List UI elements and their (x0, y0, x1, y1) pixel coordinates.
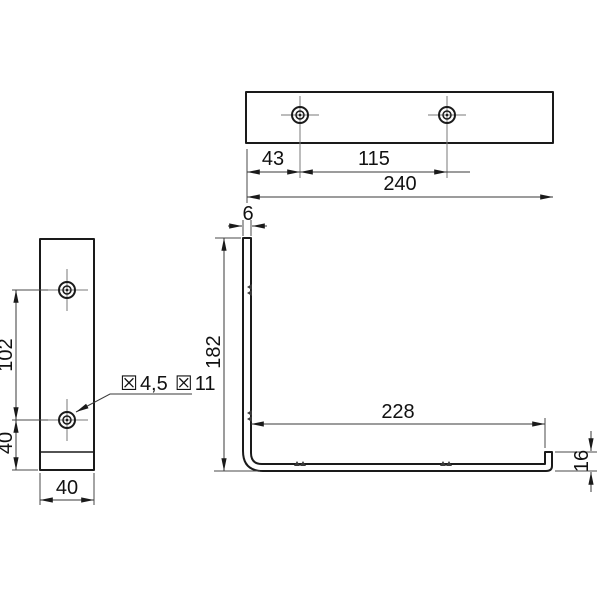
hole-center-dot (66, 289, 69, 292)
dim-label-6: 6 (242, 203, 253, 225)
hole-center-dot (66, 419, 69, 422)
diameter-symbol-icon: ☒ (175, 373, 193, 395)
dim-label-40-vertical: 40 (0, 432, 17, 454)
hole-center-dot (299, 114, 302, 117)
hole-callout: ☒4,5☒11 (76, 373, 215, 412)
dim-inner-length-228: 228 (251, 401, 545, 448)
dim-label-43: 43 (262, 148, 284, 170)
dim-label-240: 240 (383, 173, 416, 195)
dim-thickness-6: 6 (228, 203, 267, 236)
top-view-hole-left (281, 96, 319, 178)
side-view-profile-outline (243, 238, 552, 471)
dim-lip-height-16: 16 (555, 431, 597, 492)
front-view-hole-upper (46, 269, 88, 311)
dim-label-16: 16 (571, 450, 593, 472)
dim-label-182: 182 (203, 335, 225, 368)
top-view: 43 115 240 (246, 92, 553, 203)
dim-label-40-width: 40 (56, 477, 78, 499)
top-view-hole-right (428, 96, 466, 178)
technical-drawing-bracket: 43 115 240 102 40 40 (0, 0, 600, 600)
dim-label-228: 228 (381, 401, 414, 423)
callout-label: ☒4,5☒11 (120, 373, 215, 395)
dim-label-115: 115 (358, 148, 390, 170)
drawing-canvas: 43 115 240 102 40 40 (0, 0, 600, 600)
front-view: 102 40 40 ☒4,5☒11 (0, 239, 215, 505)
side-view: 6 182 228 16 (203, 203, 597, 492)
dim-label-102: 102 (0, 338, 17, 371)
front-view-hole-lower (46, 399, 88, 441)
hole-center-dot (446, 114, 449, 117)
diameter-symbol-icon: ☒ (120, 373, 138, 395)
